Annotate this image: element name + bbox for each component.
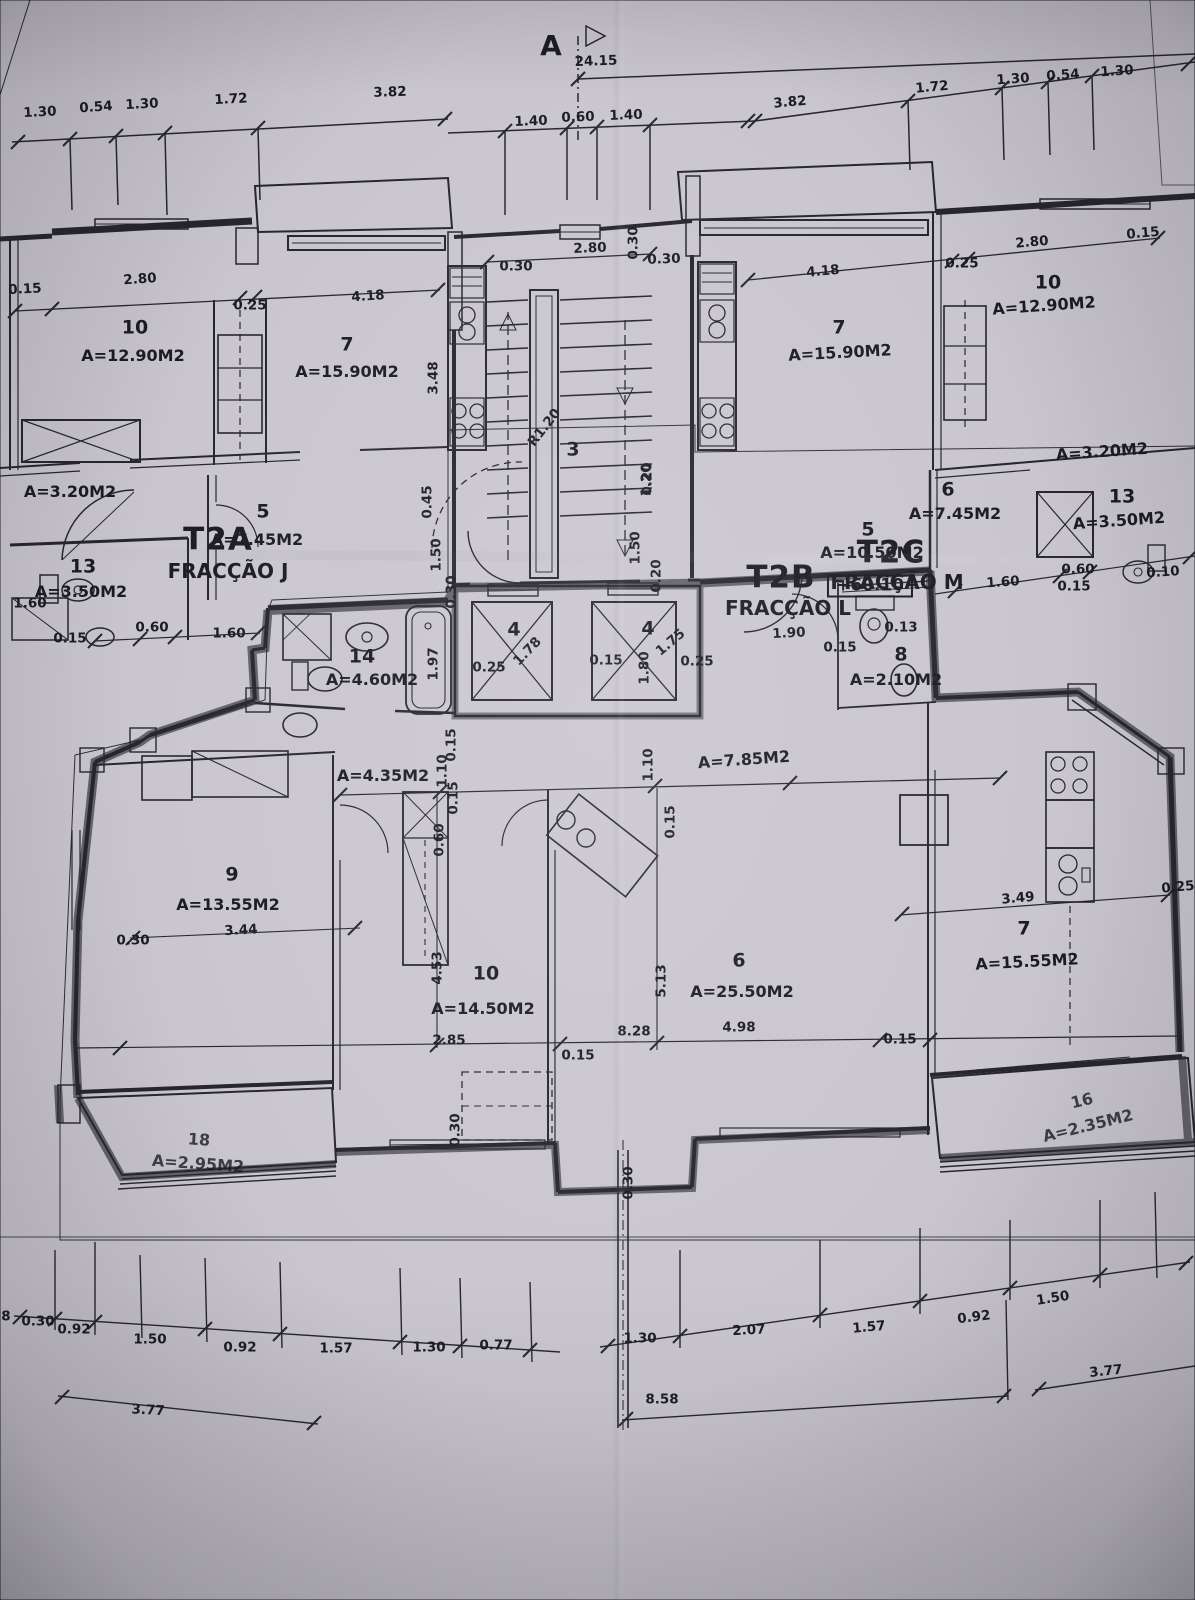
room-label: 5	[256, 503, 269, 522]
room-label: 10	[1035, 274, 1061, 293]
area-label: A=25.50M2	[690, 984, 793, 1000]
dim-label: 0.15	[589, 654, 622, 668]
dim-label: 1.50	[430, 538, 444, 571]
dim-label: 1.50	[629, 531, 643, 564]
dim-label: 0.25	[233, 299, 266, 313]
dim-label: 5.13	[655, 964, 669, 997]
area-label: A=3.20M2	[1055, 441, 1148, 463]
room-label: 7	[1017, 920, 1030, 939]
dim-label: 0.30	[449, 1113, 463, 1146]
dim-label: 2.80	[573, 242, 607, 257]
dim-label: 2.80	[1015, 235, 1049, 251]
room-label: 4	[507, 621, 520, 640]
area-label: A=13.55M2	[176, 897, 279, 913]
dim-label: 1.97	[427, 647, 441, 680]
dim-label: 1.72	[915, 80, 949, 96]
dim-label: 0.25	[680, 655, 713, 669]
dim-label: 8.58	[645, 1393, 678, 1407]
area-label: A=15.90M2	[295, 364, 398, 380]
dim-label: 3.77	[1089, 1364, 1124, 1381]
dim-label: 1.50	[133, 1333, 166, 1347]
area-label: A=7.45M2	[909, 506, 1001, 522]
area-label: A=15.90M2	[788, 342, 892, 363]
dim-label: 24.15	[574, 55, 617, 70]
area-label: A=12.90M2	[992, 294, 1096, 317]
dim-label: 1.30	[996, 72, 1030, 88]
area-label: A=4.60M2	[326, 672, 418, 688]
dim-label: 2.85	[432, 1034, 465, 1048]
dim-label: 3.77	[131, 1403, 165, 1418]
dim-label: 1.72	[214, 92, 248, 107]
big-label: T2A	[183, 525, 253, 556]
balc-label: A=2.35M2	[1041, 1107, 1134, 1145]
balc-label: 16	[1069, 1091, 1094, 1112]
dim-label: 0.60	[561, 111, 595, 126]
dim-label: 8	[1, 1310, 10, 1324]
dim-label: 3.44	[224, 923, 258, 938]
dim-label: 2.07	[732, 1323, 766, 1338]
dim-label: 0.60	[1061, 563, 1094, 577]
dim-label: 4.18	[806, 264, 840, 280]
marker-label: A	[540, 32, 562, 60]
frac-label: FRACÇÃO M	[830, 572, 963, 592]
dim-label: 0.25	[472, 661, 505, 675]
room-label: 9	[225, 866, 238, 885]
dim-label: 0.15	[883, 1033, 916, 1047]
dim-label: 0.60	[135, 621, 168, 635]
dim-label: 0.45	[421, 485, 435, 518]
dim-label: 0.15	[1126, 226, 1160, 242]
dim-label: 1.60	[13, 597, 46, 611]
dim-label: 0.30	[627, 226, 641, 259]
room-label: 6	[732, 952, 745, 971]
big-label: T2C	[857, 538, 925, 569]
area-label: A=2.10M2	[850, 672, 942, 688]
labels-layer: A24.151.300.541.301.723.821.400.601.403.…	[0, 0, 1195, 1600]
room-label: 4	[641, 620, 654, 639]
room-label: 6	[941, 481, 954, 500]
dim-label: 2.80	[123, 272, 157, 288]
dim-label: 1.30	[1100, 64, 1134, 80]
big-label: T2B	[746, 563, 815, 594]
dim-label: 0.15	[561, 1049, 594, 1063]
room-label: 3	[566, 441, 579, 460]
dim-label: 4.98	[722, 1021, 755, 1035]
dim-label: 0.60	[433, 823, 447, 856]
dim-label: 1.10	[642, 748, 656, 781]
area-label: A=3.50M2	[1072, 510, 1165, 532]
dim-label: 1.90	[772, 626, 806, 641]
dim-label: 0.30	[622, 1166, 636, 1199]
dim-label: 0.30	[116, 934, 149, 948]
dim-label: 0.92	[57, 1323, 90, 1337]
dim-label: 1.40	[514, 115, 548, 130]
dim-label: 0.30	[21, 1315, 54, 1329]
dim-label: 0.54	[1046, 68, 1080, 84]
dim-label: 0.15	[8, 282, 42, 297]
area-label: A=12.90M2	[81, 348, 184, 364]
dim-label: R1.20	[526, 407, 564, 450]
dim-label: 0.10	[1146, 565, 1180, 581]
dim-label: 1.57	[319, 1342, 352, 1356]
room-label: 13	[70, 558, 96, 577]
dim-label: 1.40	[609, 109, 643, 124]
room-label: 10	[473, 965, 499, 984]
dim-label: 0.30	[445, 575, 459, 608]
dim-label: 3.82	[773, 95, 807, 111]
dim-label: 4.53	[431, 951, 445, 984]
dim-label: 1.30	[125, 97, 159, 112]
dim-label: 0.54	[79, 100, 113, 116]
area-label: A=15.55M2	[975, 951, 1079, 972]
area-label: A=4.35M2	[337, 768, 429, 784]
room-label: 14	[349, 648, 375, 667]
area-label: A=3.20M2	[24, 484, 116, 500]
dim-label: 0.92	[223, 1341, 256, 1355]
dim-label: 0.25	[945, 257, 978, 271]
dim-label: 1.57	[852, 1320, 886, 1336]
dim-label: 0.15	[823, 641, 856, 655]
balc-label: 18	[187, 1131, 210, 1149]
dim-label: 1.60	[212, 627, 245, 641]
room-label: 8	[894, 646, 907, 665]
dim-label: 3.49	[1001, 891, 1035, 907]
dim-label: 0.25	[1161, 880, 1195, 896]
dim-label: 1.30	[23, 105, 57, 120]
dim-label: 3.82	[373, 86, 407, 101]
dim-label: 0.13	[884, 621, 917, 635]
dim-label: 4.18	[351, 289, 385, 305]
dim-label: 1.30	[623, 1332, 656, 1346]
area-label: A=7.85M2	[697, 749, 790, 771]
dim-label: 1.50	[1035, 1290, 1070, 1309]
balc-label: A=2.95M2	[151, 1153, 244, 1175]
room-label: 7	[340, 336, 353, 355]
floorplan-photo: A24.151.300.541.301.723.821.400.601.403.…	[0, 0, 1195, 1600]
room-label: 7	[832, 319, 845, 338]
area-label: A=3.50M2	[35, 584, 127, 600]
dim-label: 3.48	[427, 361, 441, 394]
dim-label: 0.30	[499, 260, 532, 274]
dim-label: 0.15	[53, 632, 86, 646]
dim-label: 0.15	[447, 781, 461, 814]
dim-label: 8.28	[617, 1025, 650, 1039]
dim-label: 0.15	[1057, 580, 1090, 594]
frac-label: FRACÇÃO J	[168, 561, 289, 581]
dim-label: 0.92	[957, 1309, 992, 1326]
frac-label: FRACÇÃO L	[725, 598, 851, 618]
dim-label: 1.80	[638, 651, 652, 684]
area-label: A=14.50M2	[431, 1001, 534, 1017]
dim-label: 0.20	[641, 462, 655, 495]
dim-label: 0.77	[479, 1339, 512, 1353]
dim-label: 0.30	[647, 253, 681, 268]
dim-label: 0.15	[664, 805, 678, 838]
dim-label: 0.20	[650, 559, 664, 592]
room-label: 10	[122, 319, 148, 338]
room-label: 13	[1109, 488, 1135, 507]
dim-label: 1.60	[986, 575, 1020, 591]
dim-label: 1.30	[412, 1341, 445, 1355]
